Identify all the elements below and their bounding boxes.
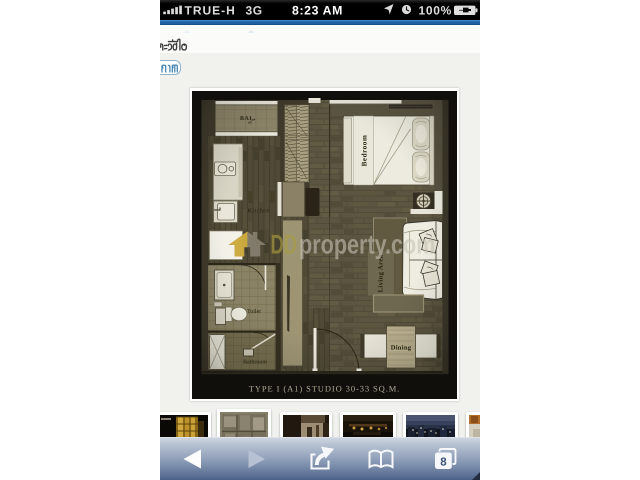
svg-text:TRUE-H: TRUE-H xyxy=(185,3,236,17)
svg-text:TYPE I (A1) STUDIO 30-33 SQ.M.: TYPE I (A1) STUDIO 30-33 SQ.M. xyxy=(249,384,400,394)
svg-text:8:23 AM: 8:23 AM xyxy=(292,3,343,17)
svg-text:8: 8 xyxy=(440,456,447,468)
svg-text:3G: 3G xyxy=(246,3,263,17)
svg-text:100%: 100% xyxy=(419,3,453,17)
